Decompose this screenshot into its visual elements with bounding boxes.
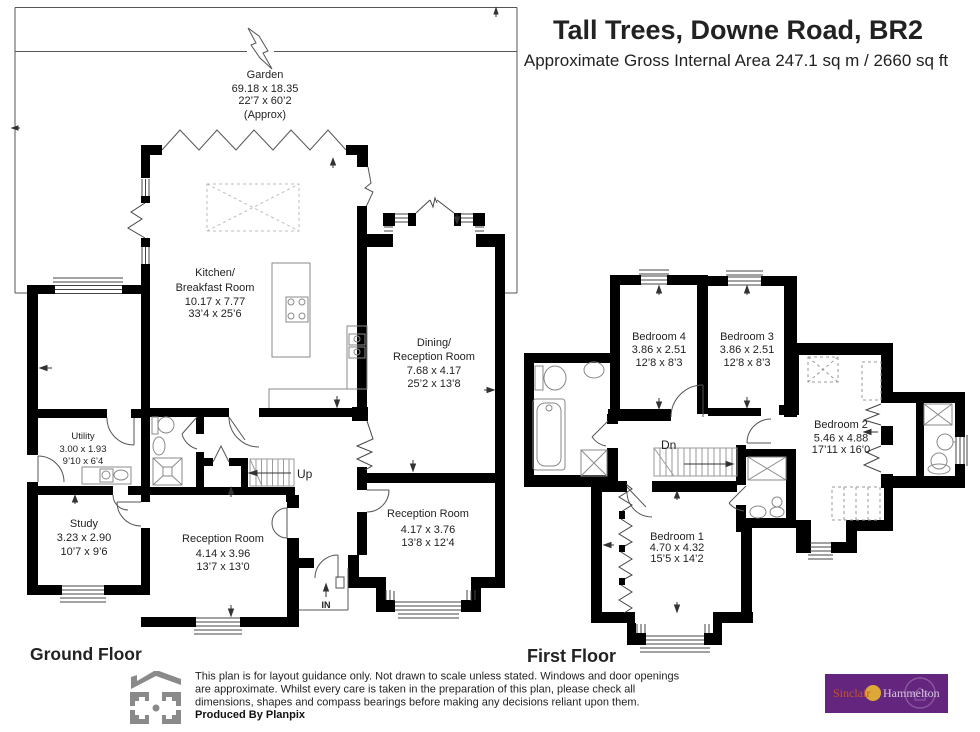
svg-text:33’4 x 25’6: 33’4 x 25’6: [188, 308, 241, 320]
svg-text:7.68 x 4.17: 7.68 x 4.17: [407, 365, 461, 377]
svg-text:15’5 x 14’2: 15’5 x 14’2: [650, 553, 703, 565]
svg-text:IN: IN: [322, 600, 331, 610]
svg-text:Hammelton: Hammelton: [883, 686, 940, 700]
svg-text:Bedroom 3: Bedroom 3: [720, 331, 774, 343]
svg-text:Study: Study: [70, 518, 99, 530]
svg-text:Tall Trees, Downe Road, BR2: Tall Trees, Downe Road, BR2: [553, 15, 923, 45]
svg-text:Reception Room: Reception Room: [393, 351, 475, 363]
svg-text:Produced By Planpix: Produced By Planpix: [195, 709, 306, 721]
svg-text:9’10 x 6’4: 9’10 x 6’4: [63, 456, 104, 467]
svg-text:Kitchen/: Kitchen/: [195, 267, 236, 279]
svg-text:4.14 x 3.96: 4.14 x 3.96: [196, 548, 250, 560]
svg-text:Up: Up: [297, 467, 313, 481]
svg-text:10’7 x 9’6: 10’7 x 9’6: [60, 546, 107, 558]
svg-text:dimensions, shapes and compass: dimensions, shapes and compass bearings …: [195, 697, 640, 709]
svg-text:25’2 x 13’8: 25’2 x 13’8: [407, 378, 460, 390]
svg-text:Garden: Garden: [247, 69, 284, 81]
svg-text:13’7 x 13’0: 13’7 x 13’0: [196, 561, 249, 573]
svg-text:12’8 x 8’3: 12’8 x 8’3: [723, 357, 770, 369]
svg-text:First Floor: First Floor: [527, 646, 616, 666]
svg-text:Reception Room: Reception Room: [387, 508, 469, 520]
svg-text:Bedroom 2: Bedroom 2: [814, 419, 868, 431]
svg-text:Approximate Gross Internal Are: Approximate Gross Internal Area 247.1 sq…: [524, 51, 949, 70]
svg-text:Ground Floor: Ground Floor: [30, 644, 142, 664]
svg-text:22’7 x 60’2: 22’7 x 60’2: [238, 95, 291, 107]
svg-text:3.00 x 1.93: 3.00 x 1.93: [59, 444, 106, 455]
svg-text:This plan is for layout guidan: This plan is for layout guidance only. N…: [195, 671, 680, 683]
svg-text:3.86 x 2.51: 3.86 x 2.51: [720, 344, 774, 356]
svg-text:13’8 x 12’4: 13’8 x 12’4: [401, 537, 454, 549]
svg-text:Utility: Utility: [71, 431, 94, 442]
svg-text:Sinclair: Sinclair: [833, 686, 870, 700]
svg-text:Breakfast Room: Breakfast Room: [176, 282, 255, 294]
svg-text:17’11 x 16’0: 17’11 x 16’0: [812, 444, 871, 456]
svg-text:Dining/: Dining/: [417, 337, 452, 349]
svg-text:69.18 x 18.35: 69.18 x 18.35: [232, 83, 299, 95]
svg-text:12’8 x 8’3: 12’8 x 8’3: [635, 357, 682, 369]
svg-text:Bedroom 4: Bedroom 4: [632, 331, 686, 343]
svg-text:Dn: Dn: [661, 438, 676, 452]
svg-text:are approximate. Whilst every: are approximate. Whilst every care is ta…: [195, 684, 635, 696]
svg-text:10.17 x 7.77: 10.17 x 7.77: [185, 296, 246, 308]
svg-text:(Approx): (Approx): [244, 109, 286, 121]
svg-text:Reception Room: Reception Room: [182, 533, 264, 545]
svg-text:3.23 x 2.90: 3.23 x 2.90: [57, 532, 111, 544]
svg-text:4.17 x 3.76: 4.17 x 3.76: [401, 524, 455, 536]
svg-text:3.86 x 2.51: 3.86 x 2.51: [632, 344, 686, 356]
svg-text:5.46 x 4.88: 5.46 x 4.88: [814, 433, 868, 445]
